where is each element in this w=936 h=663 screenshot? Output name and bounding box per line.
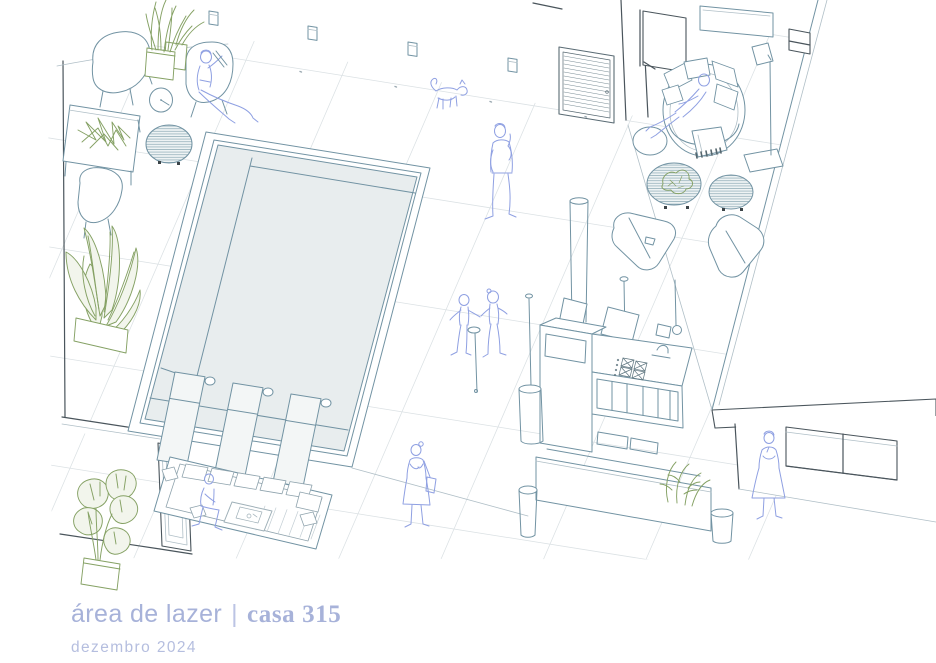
pouf-large [647,163,701,209]
wall-window [700,6,773,37]
wall-niche [789,29,810,54]
wall-corner [621,0,626,120]
side-table-clock [150,88,173,112]
title-separator: | [222,600,247,628]
lounge-chair-lower [78,168,122,238]
counter [592,334,692,454]
caption: área de lazer|casa 315 dezembro 2024 [71,600,341,657]
poolside-cylinder [519,385,543,444]
island-bench [536,449,711,531]
wall-sconces [209,11,517,72]
presentation-board: área de lazer|casa 315 dezembro 2024 [0,0,936,663]
pendant-lamp [468,327,480,393]
left-wall-edge [63,61,65,417]
page-subtitle: dezembro 2024 [71,639,341,657]
bench-cylinder-left [519,486,537,537]
banana-plant [66,226,140,353]
tile-joint-ticks [300,72,587,118]
title-bold: casa 315 [247,601,341,628]
pouf-small [709,175,753,211]
page-title: área de lazer|casa 315 [71,600,341,629]
woman-looking-at-phone [403,442,436,527]
monstera-plant [74,470,138,590]
round-daybed [662,58,745,158]
bench-cylinder-right [711,509,733,543]
title-regular: área de lazer [71,600,222,628]
daybed-ottoman [633,127,667,155]
pouf-top-left [146,125,192,165]
daybed-blanket [692,127,727,158]
doorway [640,10,686,72]
floor-lamp [752,43,773,155]
lounge-chair-top [92,32,152,107]
sunken-fire-lounge [154,457,528,549]
louvered-door [559,47,614,123]
bean-bag-left [612,213,676,270]
man-on-phone [485,124,516,219]
barbecue-island [468,198,733,543]
children-holding-hands [450,289,507,357]
architectural-illustration [0,0,936,663]
shower-column [526,294,533,386]
